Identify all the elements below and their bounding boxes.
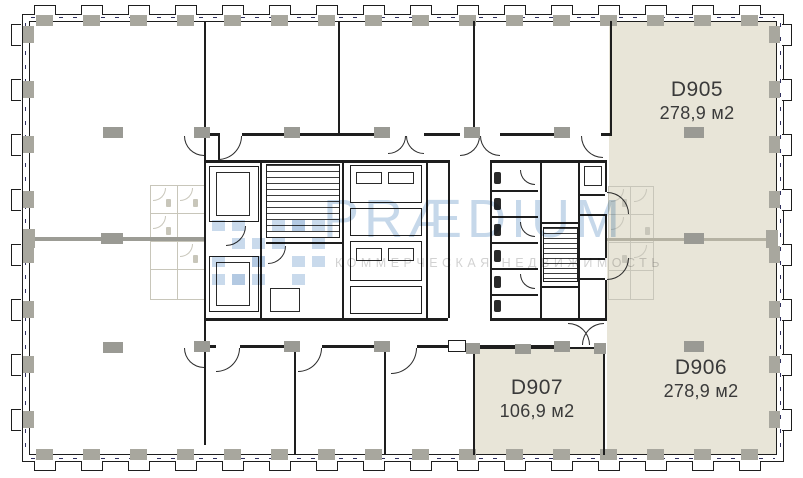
column (194, 341, 210, 352)
window-mullion (506, 449, 523, 460)
staircase-icon (266, 164, 340, 238)
window-mullion (412, 15, 429, 26)
window-icon (81, 461, 103, 471)
window-icon (645, 461, 667, 471)
window-icon (504, 461, 526, 471)
window-icon (598, 5, 620, 15)
window-mullion (177, 15, 194, 26)
window-mullion (600, 15, 617, 26)
wall (605, 160, 607, 192)
faint-partition (608, 214, 654, 215)
wall (448, 160, 450, 318)
window-mullion (694, 449, 711, 460)
window-mullion (647, 449, 664, 460)
elevator-car-box (356, 172, 382, 184)
unit-id: D906 (621, 356, 781, 380)
window-icon (11, 299, 21, 321)
window-mullion (224, 449, 241, 460)
wall (384, 345, 386, 455)
faint-fixture-icon (645, 227, 650, 235)
wall (492, 318, 607, 321)
wall (492, 160, 607, 163)
elevator-car-box (584, 166, 602, 186)
window-mullion (224, 15, 241, 26)
shaft-box (350, 286, 422, 314)
column (103, 342, 123, 353)
wall (490, 160, 492, 321)
window-icon (222, 5, 244, 15)
window-icon (11, 354, 21, 376)
window-mullion (23, 26, 34, 43)
window-mullion (694, 15, 711, 26)
window-icon (410, 461, 432, 471)
window-icon (739, 5, 761, 15)
column (284, 341, 300, 352)
elevator-car-box (388, 172, 414, 184)
window-icon (551, 5, 573, 15)
wall (424, 133, 460, 136)
column (374, 127, 390, 138)
window-mullion (769, 191, 780, 208)
window-mullion (318, 15, 335, 26)
window-icon (782, 354, 792, 376)
window-mullion (769, 26, 780, 43)
wall (342, 160, 344, 321)
column (103, 127, 123, 138)
unit-label-d906: D906 278,9 м2 (621, 356, 781, 402)
unit-id: D907 (457, 376, 617, 400)
faint-partition (150, 269, 205, 270)
window-icon (316, 5, 338, 15)
window-icon (782, 409, 792, 431)
wall (492, 268, 538, 270)
wall (605, 214, 607, 258)
window-mullion (769, 301, 780, 318)
column (466, 343, 480, 354)
window-mullion (365, 15, 382, 26)
window-mullion (83, 15, 100, 26)
window-mullion (318, 449, 335, 460)
window-mullion (177, 449, 194, 460)
partition-anchor (766, 230, 778, 248)
wall (294, 345, 296, 455)
window-icon (175, 5, 197, 15)
unit-label-d905: D905 278,9 м2 (617, 78, 777, 124)
unit-label-d907: D907 106,9 м2 (457, 376, 617, 422)
unit-area: 106,9 м2 (457, 400, 617, 422)
window-icon (11, 244, 21, 266)
window-icon (692, 461, 714, 471)
wall (492, 294, 538, 296)
wall (610, 21, 612, 133)
window-icon (457, 461, 479, 471)
wall (540, 160, 542, 321)
window-mullion (36, 449, 53, 460)
column (684, 233, 704, 244)
window-mullion (36, 15, 53, 26)
elevator-car-box (270, 288, 300, 312)
toilet-icon (494, 224, 501, 236)
wall (426, 160, 428, 321)
window-icon (692, 5, 714, 15)
faint-partition (150, 213, 205, 214)
faint-fixture-icon (166, 199, 171, 207)
wall (540, 286, 580, 288)
toilet-icon (494, 198, 501, 210)
window-icon (81, 5, 103, 15)
window-mullion (553, 449, 570, 460)
window-icon (363, 461, 385, 471)
faint-fixture-icon (166, 227, 171, 235)
window-icon (11, 409, 21, 431)
column (464, 127, 480, 138)
column (101, 233, 123, 244)
faint-partition (177, 185, 178, 300)
window-icon (782, 79, 792, 101)
wall (242, 133, 388, 136)
wall (204, 160, 448, 163)
unit-id: D905 (617, 78, 777, 102)
wall (475, 347, 605, 349)
window-icon (269, 5, 291, 15)
window-icon (782, 24, 792, 46)
toilet-icon (494, 276, 501, 288)
window-mullion (23, 191, 34, 208)
window-mullion (23, 246, 34, 263)
window-icon (11, 189, 21, 211)
shaft-box (350, 208, 422, 236)
window-mullion (647, 15, 664, 26)
column (684, 127, 704, 138)
window-icon (222, 461, 244, 471)
window-mullion (23, 301, 34, 318)
window-icon (34, 461, 56, 471)
wall (578, 160, 580, 321)
column (684, 341, 704, 352)
window-icon (645, 5, 667, 15)
window-icon (551, 461, 573, 471)
window-mullion (769, 411, 780, 428)
faint-fixture-icon (193, 255, 198, 263)
unit-area: 278,9 м2 (617, 102, 777, 124)
wall (417, 345, 448, 348)
window-mullion (23, 81, 34, 98)
window-mullion (553, 15, 570, 26)
window-mullion (271, 449, 288, 460)
column (284, 127, 300, 138)
window-mullion (130, 449, 147, 460)
window-icon (457, 5, 479, 15)
window-icon (504, 5, 526, 15)
window-mullion (130, 15, 147, 26)
door-leaf-icon (448, 340, 466, 352)
elevator-car-box (388, 248, 414, 261)
wall (580, 278, 605, 280)
wall (204, 21, 206, 445)
window-icon (363, 5, 385, 15)
window-mullion (23, 411, 34, 428)
window-icon (128, 461, 150, 471)
floor-plan-canvas: D905 278,9 м2 D906 278,9 м2 D907 106,9 м… (0, 0, 803, 478)
unit-area: 278,9 м2 (621, 380, 781, 402)
elevator-car-box (356, 248, 382, 261)
window-mullion (769, 246, 780, 263)
faint-fixture-icon (193, 199, 198, 207)
wall (540, 222, 580, 224)
window-icon (175, 461, 197, 471)
staircase-icon (543, 227, 578, 282)
window-icon (316, 461, 338, 471)
shaft-box (350, 165, 422, 203)
column (554, 341, 570, 352)
window-icon (782, 189, 792, 211)
window-mullion (769, 136, 780, 153)
wall (605, 280, 607, 321)
wall (492, 190, 538, 192)
wall (338, 21, 340, 133)
window-icon (782, 134, 792, 156)
wall (260, 160, 262, 321)
toilet-icon (494, 172, 501, 184)
wall (266, 242, 342, 244)
window-icon (598, 461, 620, 471)
elevator-car-box (216, 262, 250, 306)
column (554, 127, 570, 138)
window-icon (782, 244, 792, 266)
window-icon (269, 461, 291, 471)
wall (580, 214, 605, 216)
window-mullion (23, 356, 34, 373)
window-mullion (741, 15, 758, 26)
faint-partition (608, 242, 654, 243)
plan-drawing (0, 0, 803, 478)
window-icon (11, 134, 21, 156)
window-mullion (412, 449, 429, 460)
shaft-box (350, 241, 422, 281)
faint-partition (630, 186, 631, 300)
column (374, 341, 390, 352)
partition-anchor (23, 229, 35, 248)
window-icon (782, 299, 792, 321)
wall (492, 216, 538, 218)
column (194, 127, 210, 138)
wall (580, 194, 605, 196)
window-icon (739, 461, 761, 471)
toilet-icon (494, 250, 501, 262)
window-icon (11, 79, 21, 101)
window-mullion (365, 449, 382, 460)
column (594, 343, 606, 354)
column (515, 344, 531, 354)
window-mullion (271, 15, 288, 26)
window-mullion (83, 449, 100, 460)
window-icon (410, 5, 432, 15)
window-icon (128, 5, 150, 15)
toilet-icon (494, 300, 501, 312)
wall (204, 318, 448, 321)
faint-partition (150, 241, 205, 242)
window-mullion (741, 449, 758, 460)
window-mullion (23, 136, 34, 153)
window-icon (34, 5, 56, 15)
window-mullion (506, 15, 523, 26)
wall (580, 258, 605, 260)
window-icon (11, 24, 21, 46)
elevator-car-box (216, 172, 250, 216)
wall (492, 242, 538, 244)
wall (473, 21, 475, 133)
